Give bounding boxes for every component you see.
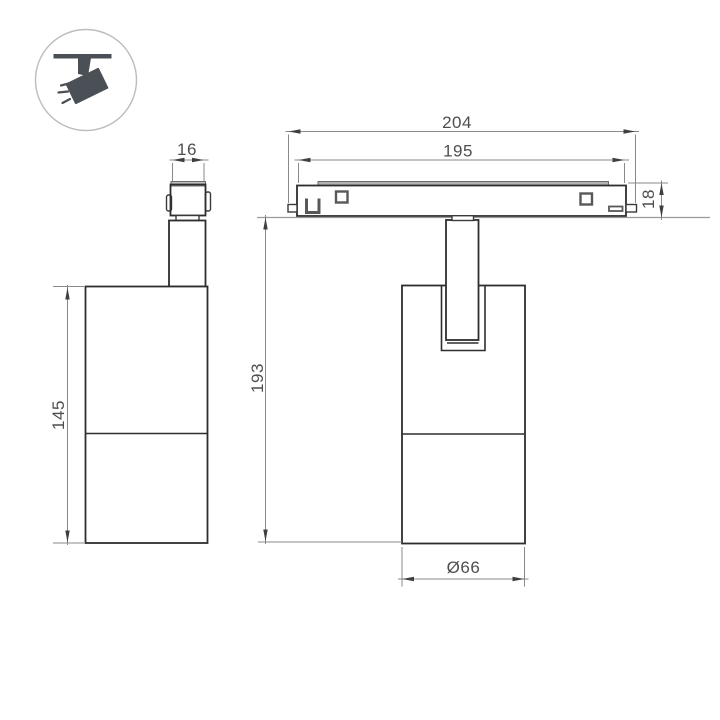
track-end-tab-left: [288, 205, 297, 213]
dim-adapter-width-label: 16: [177, 140, 197, 159]
track-end-tab-right: [626, 205, 637, 213]
adapter-block: [171, 185, 206, 216]
dim-body-diameter-label: Ø66: [447, 558, 481, 577]
stem-side: [169, 221, 206, 287]
suspension-arm: [446, 220, 479, 340]
icon-light-ray: [59, 92, 69, 93]
ceiling-track-spotlight-icon: [36, 30, 137, 131]
drawing-canvas: 16 145 204: [0, 0, 720, 720]
front-view: 204 195 18: [248, 113, 710, 587]
dim-track-height: 18: [628, 181, 668, 221]
dim-track-mount-length-label: 195: [443, 142, 473, 161]
dim-adapter-width: 16: [170, 140, 209, 181]
dim-body-diameter: Ø66: [398, 547, 529, 587]
lamp-body-side: [86, 287, 208, 544]
dim-track-length-label: 204: [442, 113, 472, 132]
dimension-drawing-page: 16 145 204: [0, 0, 720, 720]
dim-track-height-label: 18: [639, 189, 658, 209]
dim-overall-height: 193: [248, 215, 402, 544]
arm-collar: [452, 216, 474, 221]
dim-overall-height-label: 193: [248, 363, 267, 393]
icon-ceiling-bar: [54, 54, 112, 59]
dim-track-mount-length: 195: [295, 142, 630, 184]
side-view: 16 145: [49, 140, 211, 545]
dim-body-height-label: 145: [49, 400, 68, 430]
dim-body-height: 145: [49, 285, 84, 545]
